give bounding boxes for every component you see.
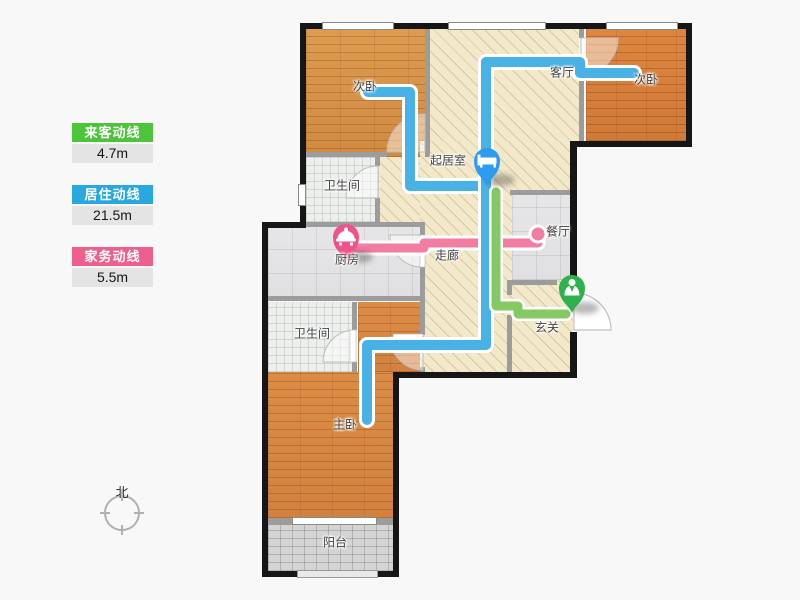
route-legend: 来客动线 4.7m 居住动线 21.5m 家务动线 5.5m (72, 123, 153, 309)
room-label-master: 主卧 (333, 416, 357, 433)
compass-tick-east (134, 512, 144, 514)
route-guest-casing (496, 192, 566, 314)
room-label-entry: 玄关 (535, 319, 559, 336)
legend-resident-label: 居住动线 (72, 185, 153, 204)
room-label-corridor: 走廊 (435, 247, 459, 264)
route-guest-line (496, 192, 566, 314)
route-resident1-line (368, 92, 486, 186)
floorplan-app: 次卧 客厅 次卧 起居室 卫生间 厨房 走廊 餐厅 玄关 卫生间 主卧 阳台 来… (0, 0, 800, 600)
route-chore-endcap (532, 228, 545, 241)
room-label-balcony: 阳台 (323, 534, 347, 551)
route-resident1-casing (368, 92, 486, 186)
legend-chore-label: 家务动线 (72, 247, 153, 266)
legend-resident-value: 21.5m (72, 206, 153, 225)
north-label: 北 (110, 482, 134, 501)
room-label-living: 客厅 (550, 64, 574, 81)
legend-item-chore: 家务动线 5.5m (72, 247, 153, 287)
compass-tick-south (121, 525, 123, 535)
room-label-dining: 餐厅 (546, 223, 570, 240)
legend-item-guest: 来客动线 4.7m (72, 123, 153, 163)
room-label-kitchen: 厨房 (335, 251, 359, 268)
room-label-bath-lower: 卫生间 (294, 325, 330, 342)
legend-item-resident: 居住动线 21.5m (72, 185, 153, 225)
room-label-bedroom-right: 次卧 (634, 71, 658, 88)
legend-chore-value: 5.5m (72, 268, 153, 287)
room-label-bedroom-left: 次卧 (353, 78, 377, 95)
compass-tick-west (100, 512, 110, 514)
room-label-bath-upper: 卫生间 (324, 177, 360, 194)
legend-guest-label: 来客动线 (72, 123, 153, 142)
room-label-sitting: 起居室 (430, 152, 466, 169)
door-leaf-bath-lower (350, 330, 356, 362)
legend-guest-value: 4.7m (72, 144, 153, 163)
